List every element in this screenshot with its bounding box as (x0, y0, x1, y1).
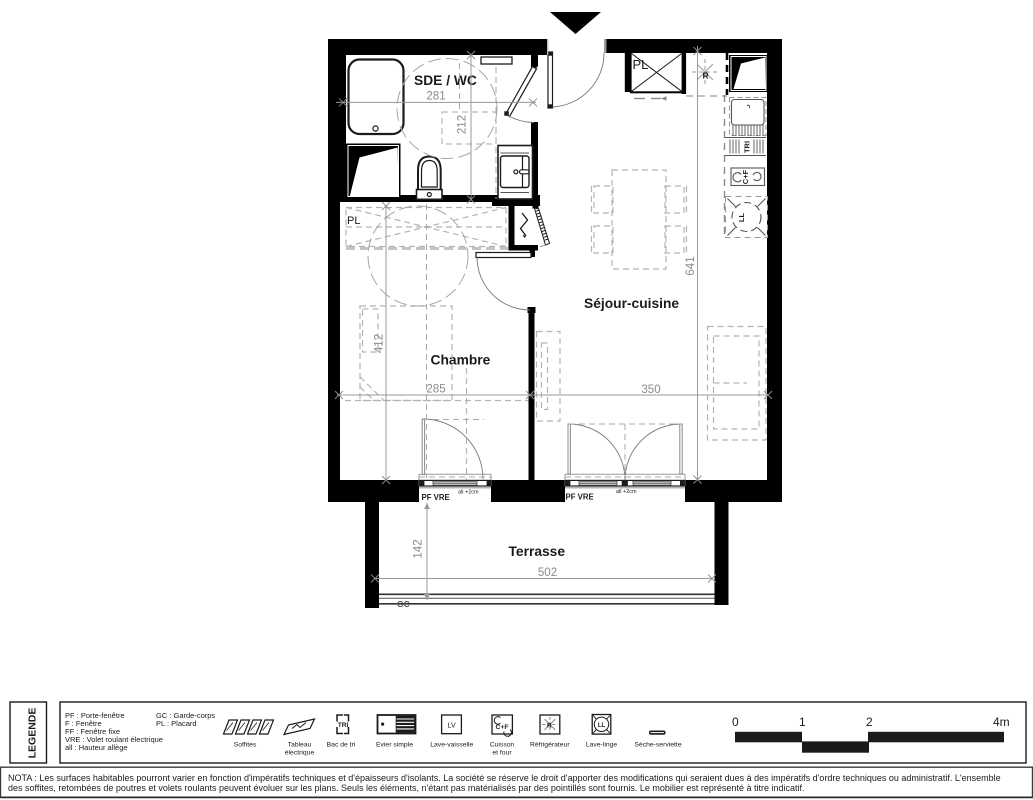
svg-text:LL: LL (737, 213, 746, 223)
svg-text:TRI: TRI (338, 722, 349, 729)
svg-text:LEGENDE: LEGENDE (27, 708, 39, 759)
svg-text:Bac de tri: Bac de tri (327, 742, 356, 749)
svg-text:C+F: C+F (741, 169, 750, 184)
svg-text:PF VRE: PF VRE (422, 493, 450, 502)
svg-text:PL : Placard: PL : Placard (156, 719, 197, 728)
svg-text:all +2cm: all +2cm (458, 490, 479, 496)
svg-text:C+F: C+F (495, 724, 508, 731)
svg-text:LL: LL (598, 723, 606, 729)
svg-text:Cuisson: Cuisson (490, 742, 515, 749)
svg-text:SDE / WC: SDE / WC (414, 73, 477, 88)
svg-text:LV: LV (447, 721, 455, 730)
svg-text:R: R (547, 723, 552, 730)
svg-text:Sèche-serviette: Sèche-serviette (634, 742, 681, 749)
svg-text:142: 142 (413, 539, 425, 558)
svg-text:1: 1 (799, 715, 806, 729)
svg-text:212: 212 (457, 115, 469, 134)
svg-text:Tableau: Tableau (288, 742, 312, 749)
svg-text:all +2cm: all +2cm (616, 489, 637, 495)
svg-text:281: 281 (426, 91, 445, 103)
svg-text:350: 350 (641, 384, 660, 396)
svg-text:502: 502 (538, 567, 557, 579)
svg-text:Séjour-cuisine: Séjour-cuisine (584, 296, 679, 311)
svg-text:PL: PL (633, 57, 649, 72)
svg-text:Chambre: Chambre (431, 353, 491, 368)
svg-text:PL: PL (347, 215, 360, 227)
svg-text:GC: GC (397, 599, 410, 609)
svg-text:R: R (703, 71, 709, 81)
svg-text:Evier simple: Evier simple (376, 742, 413, 749)
svg-text:PF VRE: PF VRE (566, 493, 594, 502)
svg-text:et four: et four (492, 750, 512, 757)
svg-text:TRI: TRI (743, 141, 752, 153)
svg-text:Soffites: Soffites (234, 742, 257, 749)
svg-text:641: 641 (685, 256, 697, 275)
svg-text:électrique: électrique (285, 750, 315, 757)
svg-text:Lave-linge: Lave-linge (586, 742, 618, 749)
svg-text:des soffites, retombées de pou: des soffites, retombées de poutres et vo… (8, 783, 804, 793)
svg-text:Réfrigérateur: Réfrigérateur (530, 742, 570, 749)
svg-text:all : Hauteur allège: all : Hauteur allège (65, 743, 128, 752)
svg-text:NOTA : Les surfaces habitables: NOTA : Les surfaces habitables pourront … (8, 773, 1001, 783)
svg-text:Lave-vaisselle: Lave-vaisselle (430, 742, 473, 749)
svg-text:Terrasse: Terrasse (509, 544, 566, 559)
svg-text:0: 0 (732, 715, 739, 729)
svg-text:2: 2 (866, 715, 873, 729)
svg-text:412: 412 (374, 334, 386, 353)
svg-text:4m: 4m (993, 715, 1010, 729)
svg-text:285: 285 (426, 384, 445, 396)
